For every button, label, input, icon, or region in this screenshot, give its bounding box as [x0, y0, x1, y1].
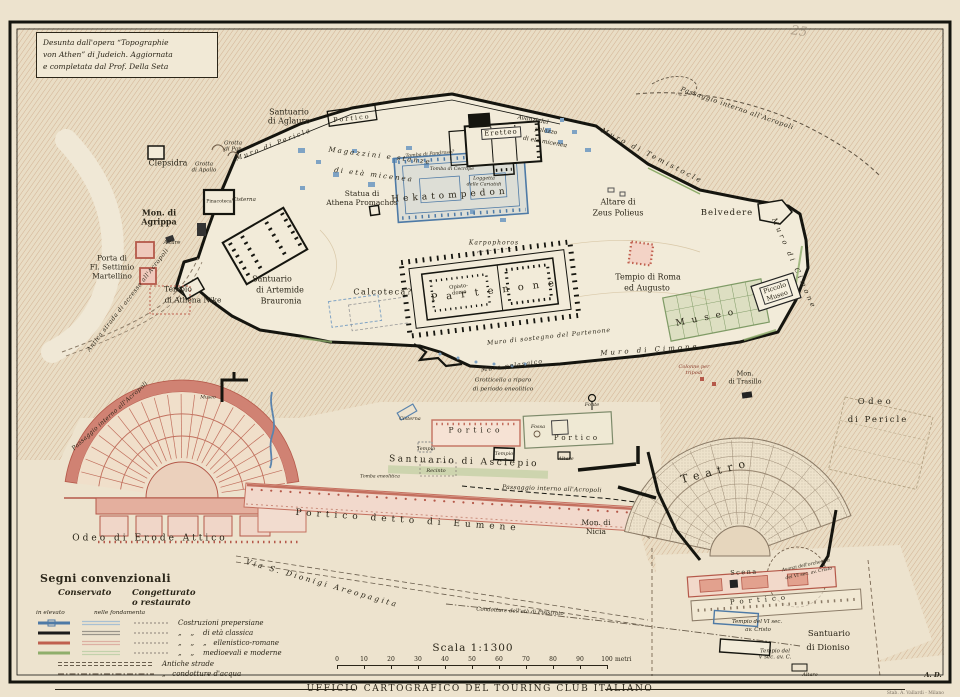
scale-tick-label: 80 [549, 656, 557, 663]
legend-swatch [36, 629, 172, 637]
legend-row-label: „ „ „ ellenistico-romane [178, 639, 279, 647]
legend-row: „ „ di età classica [36, 628, 253, 638]
map-page: PROPR. ARTISTICO-LETTERARIA DELL'ENCICLO… [0, 0, 960, 697]
scale-tick-label: 20 [387, 656, 395, 663]
legend-row-label: „ condotture d'acqua [162, 670, 241, 678]
legend-col-congetturato: Congetturato o restaurato [132, 588, 196, 608]
scale-tick-label: 0 [335, 656, 339, 663]
attribution-box: Desunta dall'opera “Topographie von Athe… [36, 32, 218, 78]
legend-row-roads: Antiche strade [56, 659, 214, 669]
printer-imprint: Stab. A. Vallardi - Milano [887, 691, 944, 696]
temple-roma-augustus [629, 242, 654, 266]
legend: Segni convenzionali Conservato Congettur… [36, 572, 338, 678]
legend-swatch [36, 619, 172, 627]
scale-tick-label: 50 [468, 656, 476, 663]
legend-row-conduits: „ condotture d'acqua [56, 669, 241, 679]
legend-row-label: Antiche strade [162, 660, 214, 668]
legend-title: Segni convenzionali [40, 572, 171, 585]
legend-row-label: „ „ medioevali e moderne [178, 649, 282, 657]
legend-row: Costruzioni prepersiane [36, 618, 264, 628]
agrippa-monument-structure [197, 223, 206, 236]
scale-label: Scala 1:1300 [337, 642, 609, 654]
scale-tick-label: 10 [360, 656, 368, 663]
scale-bar: 0102030405060708090100metri [337, 656, 637, 674]
scale-tick-label: 90 [576, 656, 584, 663]
legend-swatch [36, 649, 172, 657]
footer-agency: UFFICIO CARTOGRAFICO DEL TOURING CLUB IT… [0, 684, 960, 694]
legend-sub-elevato: in elevato [36, 610, 65, 616]
legend-col-conservato: Conservato [58, 588, 111, 598]
scale-tick-label: 100 [601, 656, 612, 663]
legend-row-label: „ „ di età classica [178, 629, 253, 637]
legend-row: „ „ medioevali e moderne [36, 648, 282, 658]
beule-gate [136, 242, 154, 258]
scale-tick-label: 40 [441, 656, 449, 663]
scale-tick-label: 70 [522, 656, 530, 663]
legend-row: „ „ „ ellenistico-romane [36, 638, 279, 648]
legend-swatch-conduits [56, 670, 156, 678]
legend-sub-fondamenta: nelle fondamenta [94, 610, 145, 616]
scale-tick-label: 60 [495, 656, 503, 663]
legend-swatch-roads [56, 660, 156, 668]
pinacoteca-structure [204, 190, 234, 214]
legend-row-label: Costruzioni prepersiane [178, 619, 264, 627]
legend-swatch [36, 639, 172, 647]
scale-unit: metri [615, 656, 631, 663]
clepsydra-structure [148, 146, 164, 159]
scale-tick-label: 30 [414, 656, 422, 663]
